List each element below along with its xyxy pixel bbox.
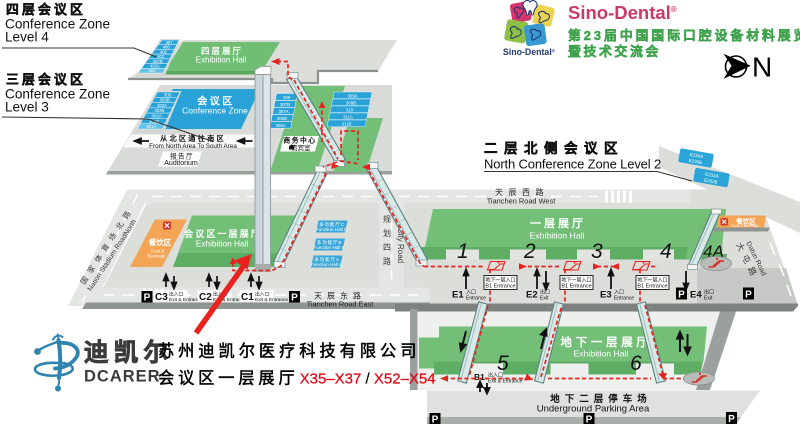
- svg-text:301A: 301A: [146, 124, 156, 129]
- svg-text:4: 4: [660, 240, 672, 263]
- svg-text:第23届中国国际口腔设备材料展览会: 第23届中国国际口腔设备材料展览会: [568, 28, 800, 43]
- svg-text:四层会议区: 四层会议区: [6, 2, 86, 17]
- svg-text:C1: C1: [241, 292, 254, 303]
- svg-text:Sino-Dental®: Sino-Dental®: [503, 47, 556, 57]
- svg-text:三层会议区: 三层会议区: [6, 72, 86, 87]
- svg-text:305: 305: [164, 92, 172, 97]
- svg-text:划: 划: [383, 228, 391, 238]
- svg-text:P: P: [432, 415, 439, 426]
- svg-text:311A: 311A: [343, 115, 353, 120]
- svg-text:P: P: [144, 293, 151, 304]
- svg-text:DCARER: DCARER: [84, 368, 161, 386]
- svg-text:303B: 303B: [160, 98, 170, 103]
- svg-text:出入口: 出入口: [255, 291, 270, 298]
- svg-text:苏州迪凯尔医疗科技有限公司: 苏州迪凯尔医疗科技有限公司: [158, 343, 420, 361]
- svg-text:出入口: 出入口: [488, 372, 503, 379]
- svg-text:303A: 303A: [157, 103, 167, 108]
- svg-text:一层展厅: 一层展厅: [530, 217, 586, 230]
- svg-text:Level 4: Level 4: [5, 30, 49, 45]
- svg-text:310: 310: [346, 108, 354, 113]
- svg-text:309B: 309B: [346, 101, 356, 106]
- svg-text:Underground Parking Area: Underground Parking Area: [537, 404, 650, 415]
- svg-text:出口: 出口: [540, 289, 550, 296]
- svg-text:地下一层入口: 地下一层入口: [637, 277, 667, 284]
- svg-text:Food & Beverage: Food & Beverage: [731, 224, 759, 228]
- svg-text:Exit & Entrance: Exit & Entrance: [169, 297, 202, 303]
- svg-text:E2: E2: [526, 290, 538, 301]
- svg-text:地下一层入口: 地下一层入口: [485, 277, 515, 284]
- svg-text:E1: E1: [452, 290, 464, 301]
- svg-text:P: P: [291, 293, 298, 304]
- svg-text:Exit: Exit: [540, 296, 549, 302]
- svg-text:302A: 302A: [152, 114, 162, 119]
- svg-text:N: N: [752, 52, 772, 83]
- svg-text:P: P: [586, 415, 593, 426]
- svg-text:Sino-Dental®: Sino-Dental®: [568, 2, 677, 23]
- svg-text:401: 401: [148, 68, 156, 73]
- svg-text:North Conference Zone Level 2: North Conference Zone Level 2: [484, 157, 661, 172]
- svg-text:Entrance: Entrance: [466, 296, 486, 302]
- svg-text:出口: 出口: [704, 289, 714, 296]
- svg-text:地下一层展厅: 地下一层展厅: [560, 335, 651, 349]
- svg-text:Exit & Entrance: Exit & Entrance: [255, 297, 288, 303]
- svg-text:Conference Zone: Conference Zone: [182, 106, 248, 116]
- svg-text:P: P: [678, 290, 685, 301]
- svg-text:Exhibition Hall: Exhibition Hall: [196, 239, 249, 249]
- svg-text:306B: 306B: [277, 116, 287, 121]
- svg-text:307B: 307B: [280, 102, 290, 107]
- svg-text:会议区一层展厅X35–X37 / X52–X54: 会议区一层展厅X35–X37 / X52–X54: [158, 370, 436, 388]
- svg-text:Function Hall B: Function Hall B: [313, 245, 344, 250]
- svg-text:E4: E4: [690, 290, 702, 301]
- svg-text:307A: 307A: [278, 109, 288, 114]
- svg-text:Exit & Entrance: Exit & Entrance: [488, 379, 523, 385]
- svg-text:306A: 306A: [275, 123, 285, 128]
- svg-text:B1 Entrance: B1 Entrance: [485, 284, 515, 290]
- svg-text:出入口: 出入口: [169, 291, 184, 298]
- svg-text:B1 Entrance: B1 Entrance: [637, 284, 667, 290]
- svg-text:路: 路: [383, 256, 391, 266]
- svg-text:四层展厅: 四层展厅: [201, 46, 243, 56]
- svg-text:Level 3: Level 3: [5, 100, 49, 115]
- svg-text:从北区通往南区: 从北区通往南区: [160, 134, 226, 143]
- svg-text:C3: C3: [155, 292, 168, 303]
- svg-text:P: P: [728, 414, 735, 425]
- svg-text:308: 308: [283, 95, 291, 100]
- svg-text:地下一层入口: 地下一层入口: [561, 277, 591, 284]
- svg-text:暨技术交流会: 暨技术交流会: [568, 44, 661, 59]
- svg-text:Auditorium: Auditorium: [164, 160, 198, 167]
- svg-text:Tianchen Road West: Tianchen Road West: [487, 197, 556, 206]
- svg-text:E3: E3: [600, 290, 612, 301]
- svg-text:Exit: Exit: [704, 296, 713, 302]
- svg-text:B1 Entrance: B1 Entrance: [561, 284, 591, 290]
- svg-text:Exhibition Hall: Exhibition Hall: [573, 349, 628, 359]
- svg-text:Beverage: Beverage: [148, 254, 167, 259]
- svg-text:Function Hall A: Function Hall A: [311, 262, 343, 267]
- svg-text:Entrance: Entrance: [614, 296, 634, 302]
- svg-text:餐饮区: 餐饮区: [148, 237, 172, 247]
- svg-text:Function Hall C: Function Hall C: [316, 227, 348, 232]
- svg-text:P: P: [745, 290, 752, 301]
- svg-text:2: 2: [523, 240, 536, 263]
- svg-text:商务中心: 商务中心: [283, 136, 316, 145]
- svg-text:309A: 309A: [347, 94, 357, 99]
- svg-text:Tianchen Road East: Tianchen Road East: [307, 300, 374, 309]
- svg-text:C2: C2: [199, 292, 212, 303]
- svg-text:二层北侧会议区: 二层北侧会议区: [484, 140, 624, 156]
- svg-text:贵宾室: 贵宾室: [291, 143, 311, 152]
- svg-text:会议区一层展厅: 会议区一层展厅: [184, 228, 262, 239]
- svg-text:1: 1: [457, 240, 469, 263]
- svg-text:Exhibition Hall: Exhibition Hall: [529, 231, 584, 241]
- svg-text:6: 6: [630, 352, 642, 375]
- svg-text:From North Area To South Area: From North Area To South Area: [149, 143, 237, 150]
- svg-text:天辰西路: 天辰西路: [495, 187, 549, 197]
- svg-text:规: 规: [383, 214, 391, 224]
- svg-text:311B: 311B: [342, 122, 352, 127]
- svg-text:302B: 302B: [154, 108, 164, 113]
- svg-text:Exhibition Hall: Exhibition Hall: [196, 56, 247, 65]
- svg-text:四: 四: [383, 243, 391, 252]
- svg-text:3: 3: [591, 240, 603, 263]
